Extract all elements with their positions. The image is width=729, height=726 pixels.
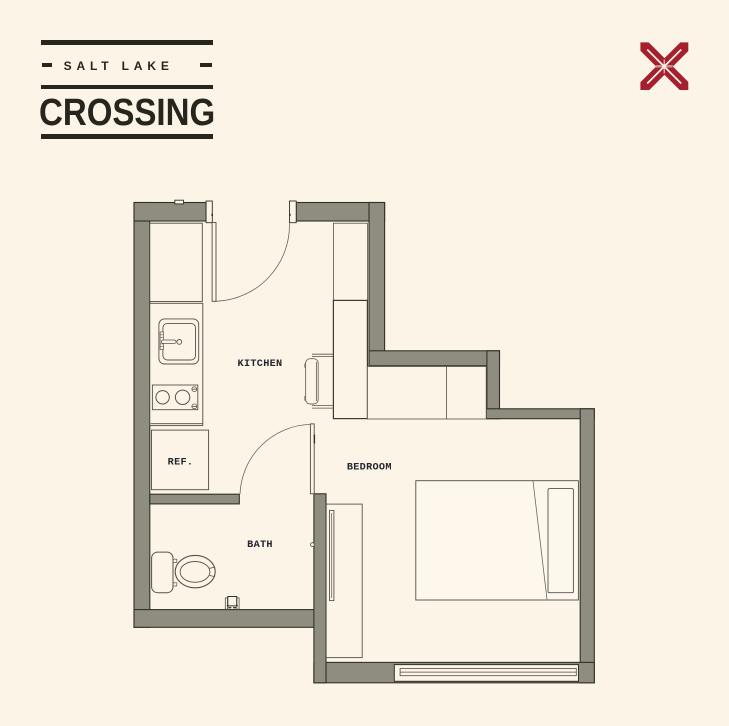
svg-text:BEDROOM: BEDROOM (347, 463, 392, 474)
svg-text:KITCHEN: KITCHEN (238, 359, 283, 370)
svg-text:REF.: REF. (168, 458, 194, 469)
svg-text:BATH: BATH (247, 540, 273, 551)
